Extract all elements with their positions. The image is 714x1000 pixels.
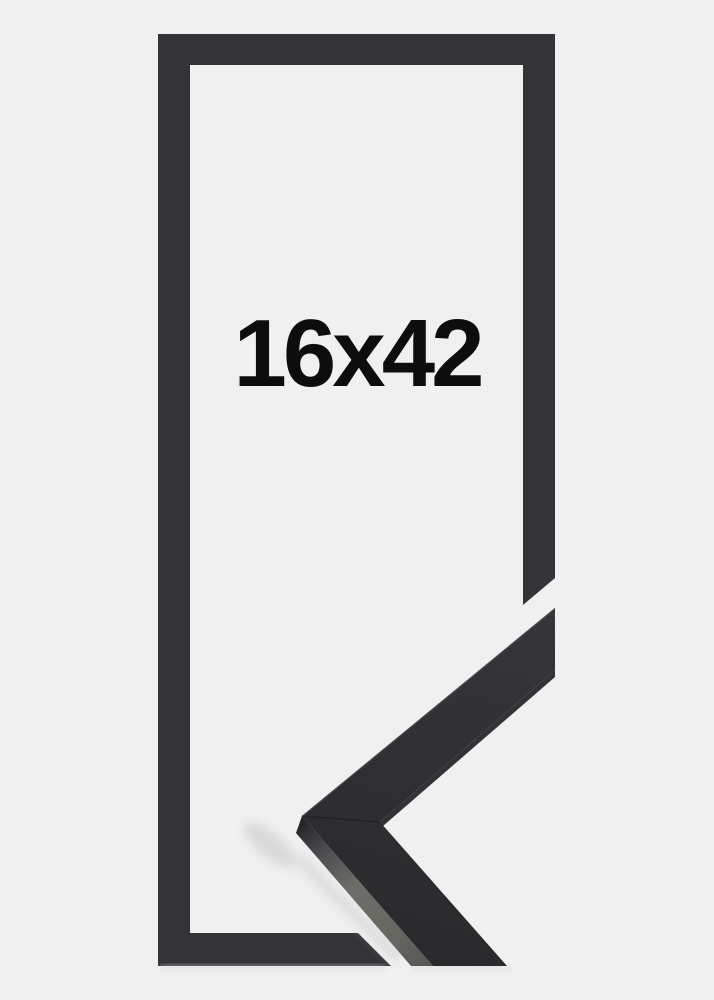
frame-bottom-shadow — [160, 966, 512, 971]
size-label: 16x42 — [234, 300, 482, 407]
frame-product-graphic: 16x42 — [0, 0, 714, 1000]
product-photo: 16x42 — [0, 0, 714, 1000]
